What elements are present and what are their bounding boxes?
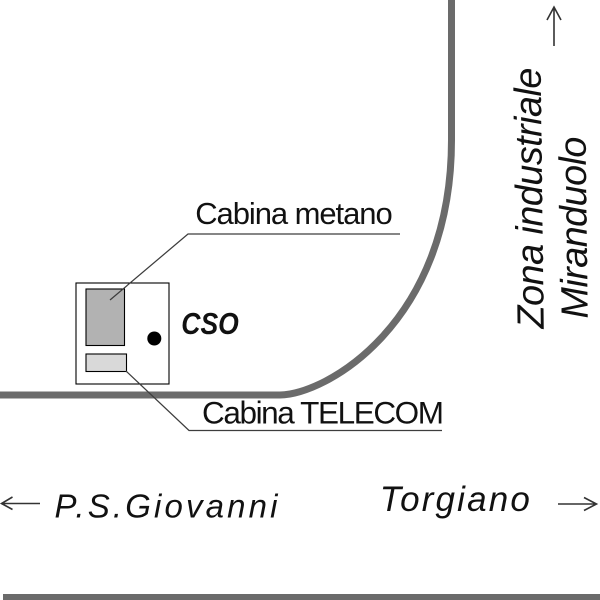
svg-text:Zona industriale: Zona industriale — [508, 67, 553, 329]
svg-text:P.S.Giovanni: P.S.Giovanni — [55, 488, 280, 525]
svg-text:Miranduolo: Miranduolo — [553, 136, 597, 318]
svg-text:Cabina metano: Cabina metano — [195, 196, 393, 231]
svg-text:Cabina TELECOM: Cabina TELECOM — [202, 394, 444, 430]
svg-text:Torgiano: Torgiano — [380, 480, 530, 519]
svg-text:CSO: CSO — [181, 306, 239, 341]
